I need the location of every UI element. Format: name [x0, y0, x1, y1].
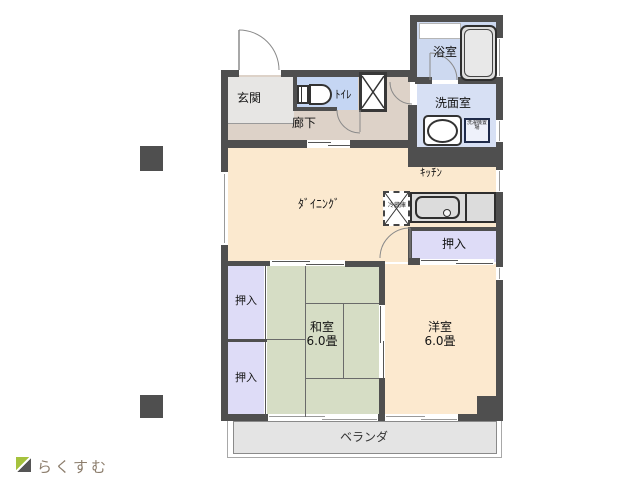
wall-closet-kitchen-top	[408, 227, 496, 231]
wall-top-entrance-right	[281, 70, 417, 77]
wall-bottom-a	[221, 414, 268, 421]
window-washitsu-balcony-line1	[269, 416, 325, 417]
window-bath-right-line	[499, 39, 500, 76]
refrigerator-label: 冷蔵庫	[386, 203, 408, 209]
toilet-bowl	[309, 84, 332, 105]
sliding-door-hall-dining-line1	[308, 142, 331, 143]
window-western-balcony-line2	[421, 419, 457, 420]
sliding-door-closet-western-line2	[456, 263, 493, 264]
japanese-room-name: 和室	[290, 320, 354, 334]
brand-name: らくすむ	[37, 456, 109, 477]
kitchen-sink-drain	[443, 209, 451, 217]
wall-toilet-bottom	[293, 107, 337, 111]
western-room-name: 洋室	[408, 320, 472, 334]
washroom-label: 洗面室	[435, 96, 471, 110]
sliding-door-washitsu-western-line1	[380, 306, 381, 343]
kitchen-label: ｷｯﾁﾝ	[420, 166, 442, 180]
wall-right-4	[496, 192, 503, 267]
sliding-door-dining-washitsu-line2	[306, 264, 344, 265]
wall-dining-bottom-a	[221, 261, 270, 266]
bathroom-counter	[419, 23, 461, 39]
dining-label: ﾀﾞｲﾆﾝｸﾞ	[298, 197, 340, 211]
sliding-door-dining-washitsu-line1	[272, 261, 310, 262]
wall-hall-bottom-right	[350, 140, 415, 148]
pillar-upper	[140, 146, 163, 171]
washing-machine-label: 洗濯機置場	[466, 121, 488, 131]
western-room-label: 洋室 6.0畳	[408, 320, 472, 348]
bathtub-inner	[464, 29, 493, 77]
washroom-sink-bowl	[427, 119, 458, 143]
wall-closet-divider	[228, 339, 267, 342]
pipe-shaft	[359, 72, 387, 112]
sliding-door-washitsu-western-line2	[383, 341, 384, 378]
wall-corner-notch	[477, 396, 500, 416]
kitchen-sink	[415, 196, 460, 219]
veranda-label: ベランダ	[233, 430, 495, 444]
tatami-line-h2	[305, 303, 379, 304]
wall-bathblock-left	[410, 15, 417, 77]
wall-hall-bottom-left	[221, 140, 307, 148]
logo-house-icon	[16, 457, 31, 472]
western-room-size: 6.0畳	[408, 334, 472, 348]
window-washroom-right-line	[499, 121, 500, 141]
bathroom-label: 浴室	[433, 45, 457, 59]
wall-left-upper	[221, 70, 228, 172]
wall-left-lower	[221, 245, 228, 421]
window-western-right-line	[499, 268, 500, 279]
hallway-label: 廊下	[292, 116, 316, 130]
japanese-room-size: 6.0畳	[290, 334, 354, 348]
window-western-balcony-line1	[386, 416, 425, 417]
genkan-label: 玄関	[237, 91, 261, 105]
toilet-tank-line	[301, 86, 302, 102]
sliding-door-hall-dining-line2	[328, 145, 350, 146]
toilet-tank	[297, 85, 309, 104]
toilet-label: ﾄｲﾚ	[335, 88, 352, 102]
wall-right-1	[496, 15, 503, 38]
wall-top-bath	[410, 15, 503, 22]
sliding-door-closet-western-line1	[421, 260, 458, 261]
tatami-line-h3	[305, 378, 379, 379]
wall-bath-washroom-a	[415, 77, 432, 84]
wall-right-2	[496, 77, 503, 120]
closet-kitchen-label: 押入	[412, 237, 496, 251]
window-dining-left-line	[224, 174, 225, 243]
wall-washroom-left-b	[408, 105, 417, 147]
closet-upper-label: 押入	[226, 294, 266, 308]
wall-washitsu-youshitsu-a	[379, 262, 385, 305]
wall-washroom-bottom	[408, 147, 503, 167]
japanese-room-label: 和室 6.0畳	[290, 320, 354, 348]
pillar-lower	[140, 395, 163, 418]
wall-door-post	[412, 258, 420, 265]
wall-washitsu-youshitsu-b	[379, 378, 385, 417]
kitchen-counter-divider	[465, 194, 467, 221]
window-washitsu-balcony-line2	[322, 419, 377, 420]
floorplan-canvas: 冷蔵庫 洗濯機置場 玄関 ﾄｲﾚ 廊下 浴室 洗面室 ﾀﾞｲﾆﾝｸﾞ ｷｯﾁﾝ	[0, 0, 640, 480]
window-kitchen-right-line	[499, 171, 500, 191]
closet-lower-label: 押入	[226, 371, 266, 385]
